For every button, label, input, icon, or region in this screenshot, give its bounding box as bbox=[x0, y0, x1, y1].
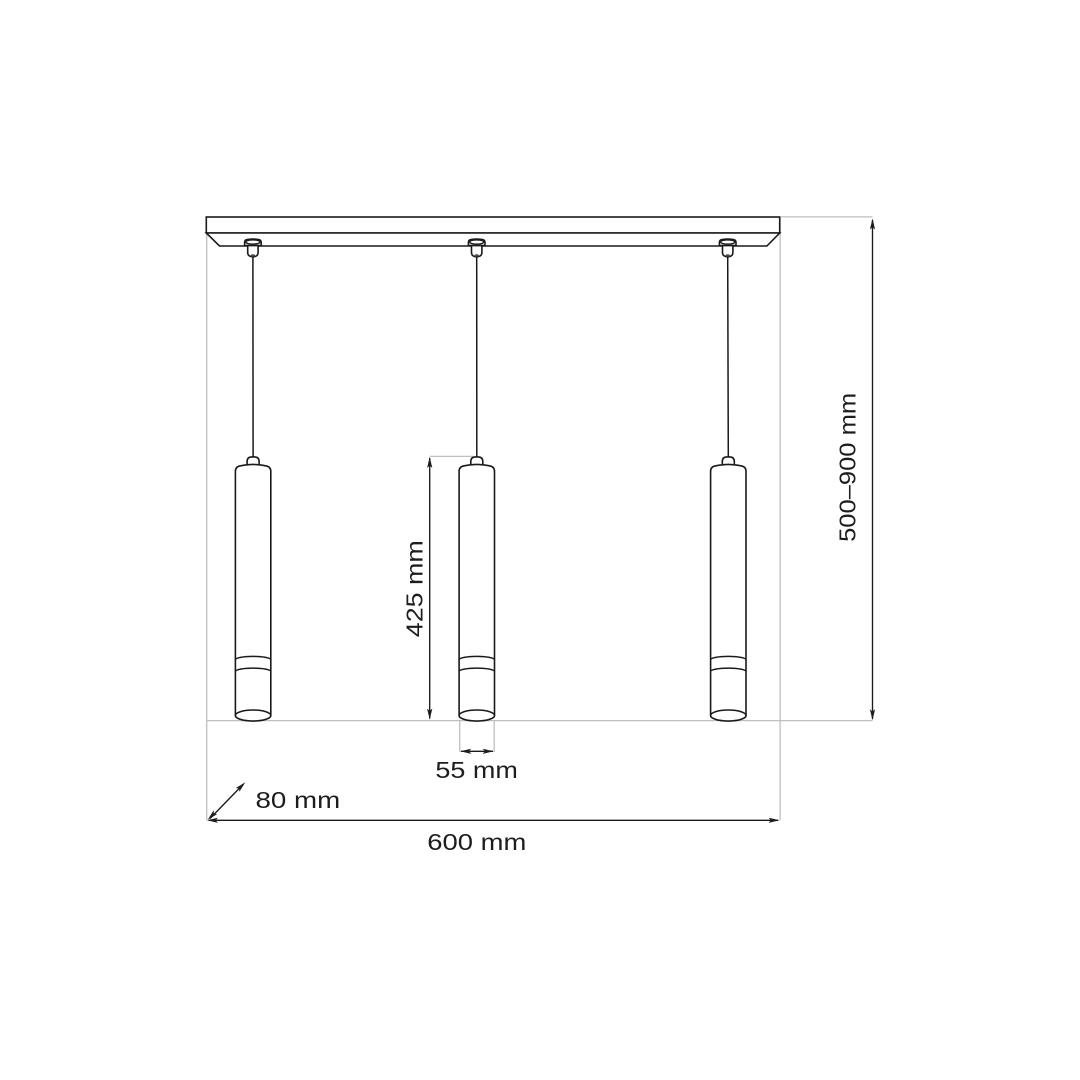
svg-text:80 mm: 80 mm bbox=[256, 787, 341, 813]
svg-text:425 mm: 425 mm bbox=[401, 540, 427, 637]
svg-text:55 mm: 55 mm bbox=[435, 757, 518, 783]
svg-text:500–900 mm: 500–900 mm bbox=[834, 393, 860, 542]
svg-text:600 mm: 600 mm bbox=[427, 829, 526, 855]
